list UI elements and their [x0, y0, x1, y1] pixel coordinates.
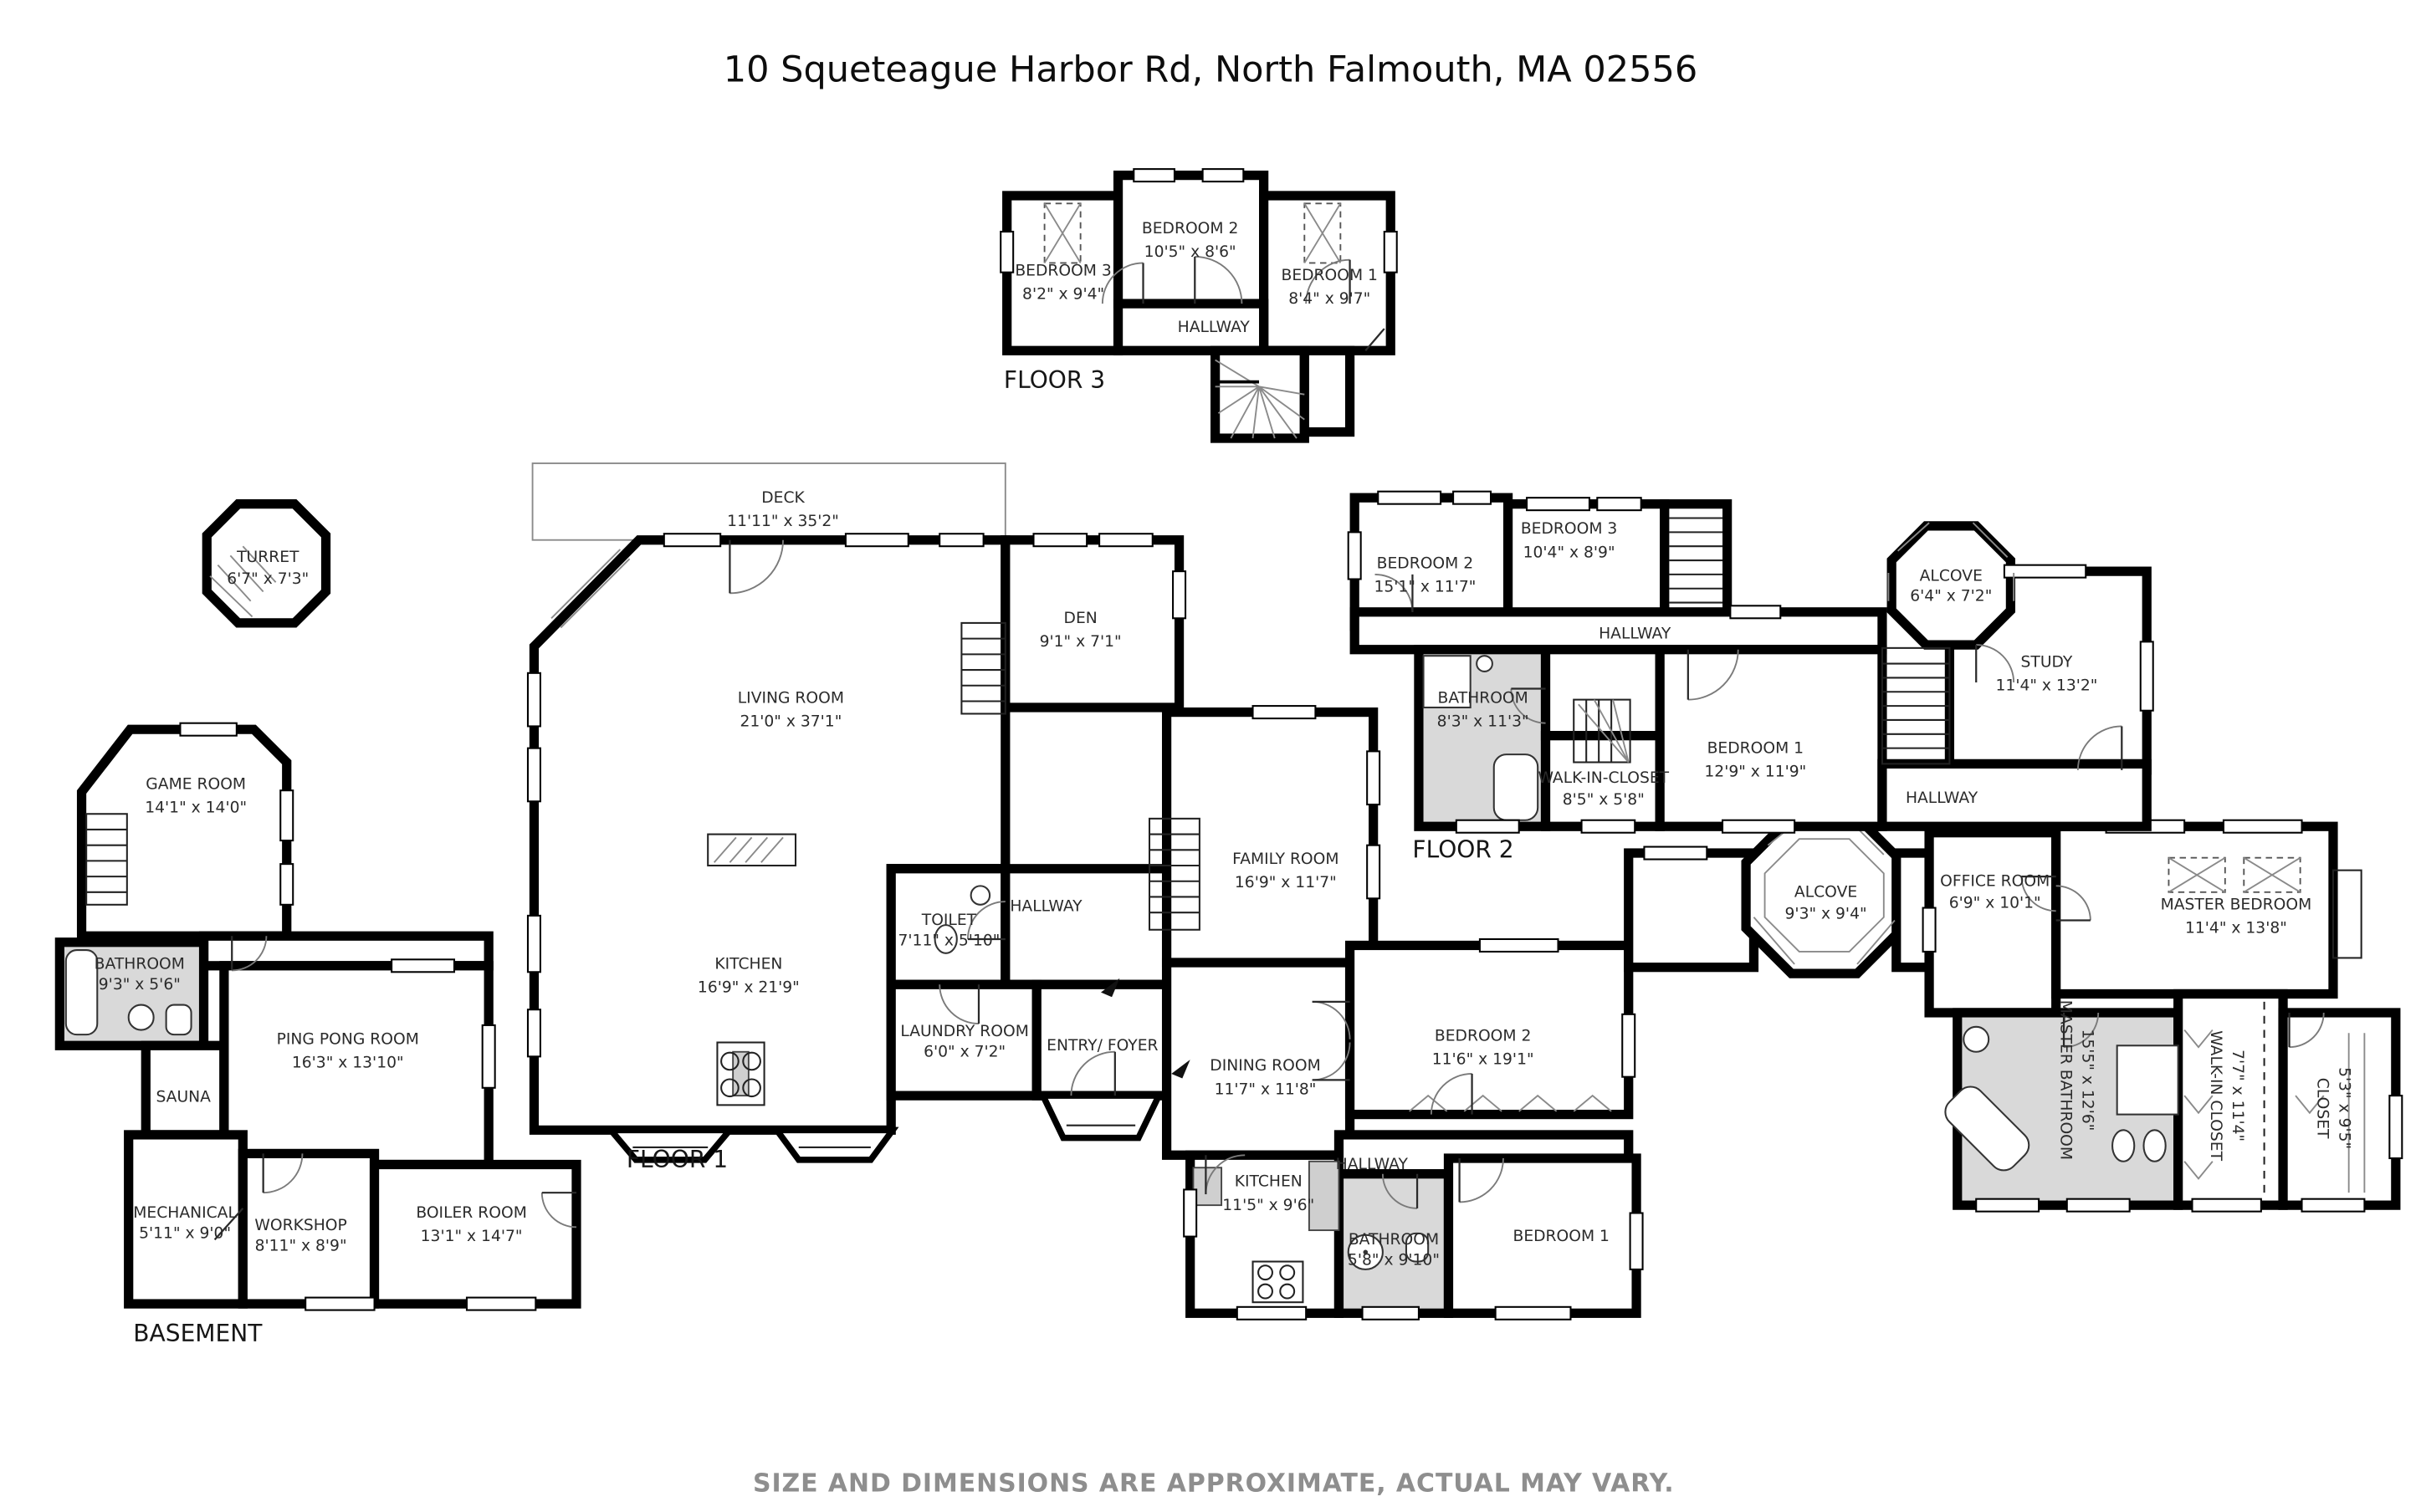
label-f1-alcove-dims: 9'3" x 9'4"	[1785, 906, 1867, 923]
label-floor2: FLOOR 2	[1412, 836, 1513, 864]
label-mechanical-dims: 5'11" x 9'0"	[139, 1224, 231, 1242]
f2-hall-pocket	[1546, 650, 1661, 736]
label-f2-bedroom3-dims: 10'4" x 8'9"	[1523, 544, 1615, 561]
label-turret: TURRET	[236, 549, 299, 566]
label-master-bathroom-dims: 15'5" x 12'6"	[2079, 1029, 2096, 1131]
label-f2-study: STUDY	[2021, 653, 2073, 671]
label-dining: DINING ROOM	[1210, 1057, 1320, 1075]
label-f3-bedroom3-dims: 8'2" x 9'4"	[1022, 285, 1104, 303]
label-laundry: LAUNDRY ROOM	[900, 1023, 1028, 1040]
label-f1-hallway2: HALLWAY	[1336, 1156, 1409, 1173]
floorplan-canvas: 10 Squeteague Harbor Rd, North Falmouth,…	[0, 0, 2421, 1512]
label-closet-dims: 5'3" x 9'5"	[2335, 1067, 2352, 1149]
label-f2-bathroom-dims: 8'3" x 11'3"	[1437, 713, 1529, 730]
room-f1-corridor	[1629, 853, 1754, 968]
label-kitchen2: KITCHEN	[1235, 1173, 1303, 1191]
label-f3-bedroom1: BEDROOM 1	[1282, 267, 1378, 284]
label-master-wic-dims: 7'7" x 11'4"	[2229, 1050, 2246, 1142]
label-pingpong: PING PONG ROOM	[277, 1030, 419, 1048]
label-floor3: FLOOR 3	[1004, 366, 1105, 394]
label-boiler-dims: 13'1" x 14'7"	[421, 1228, 523, 1245]
label-den-dims: 9'1" x 7'1"	[1040, 633, 1122, 651]
label-laundry-dims: 6'0" x 7'2"	[924, 1043, 1006, 1060]
label-f2-hallway: HALLWAY	[1599, 626, 1671, 643]
floor3-plan: BEDROOM 3 8'2" x 9'4" BEDROOM 2 10'5" x …	[1001, 169, 1397, 438]
label-boiler: BOILER ROOM	[416, 1204, 527, 1222]
label-workshop-dims: 8'11" x 8'9"	[255, 1237, 347, 1254]
label-f2-alcove: ALCOVE	[1920, 567, 1983, 585]
label-f1-hallway: HALLWAY	[1010, 897, 1083, 915]
f3-stair-landing	[1304, 350, 1349, 432]
label-family: FAMILY ROOM	[1232, 850, 1338, 868]
label-dining-dims: 11'7" x 11'8"	[1215, 1080, 1317, 1098]
label-workshop: WORKSHOP	[254, 1217, 346, 1234]
label-living: LIVING ROOM	[738, 689, 844, 707]
label-f3-bedroom1-dims: 8'4" x 9'7"	[1288, 290, 1370, 308]
label-deck: DECK	[761, 489, 805, 507]
label-turret-dims: 6'7" x 7'3"	[227, 570, 309, 588]
label-f1-alcove: ALCOVE	[1794, 883, 1857, 901]
room-f3-bedroom2	[1118, 176, 1264, 304]
label-f2-bedroom1-dims: 12'9" x 11'9"	[1704, 763, 1806, 780]
label-f2-wic-dims: 8'5" x 5'8"	[1563, 791, 1645, 809]
label-f3-hallway: HALLWAY	[1178, 319, 1251, 336]
floor2-plan: BEDROOM 2 15'1" x 11'7" BEDROOM 3 10'4" …	[1349, 492, 2153, 864]
label-f2-bedroom2: BEDROOM 2	[1377, 554, 1473, 572]
label-f1-bedroom2-dims: 11'6" x 19'1"	[1432, 1051, 1534, 1069]
label-family-dims: 16'9" x 11'7"	[1235, 874, 1337, 891]
room-f2-alcove	[1891, 526, 2010, 645]
label-kitchen2-dims: 11'5" x 9'6"	[1222, 1197, 1314, 1214]
label-office-dims: 6'9" x 10'1"	[1949, 895, 2041, 912]
label-game-dims: 14'1" x 14'0"	[145, 799, 247, 816]
label-bsmt-bathroom-dims: 9'3" x 5'6"	[99, 976, 181, 994]
label-f2-hallway2: HALLWAY	[1906, 789, 1978, 807]
label-toilet-dims: 7'11" x 5'10"	[898, 932, 1001, 949]
label-living-dims: 21'0" x 37'1"	[740, 713, 842, 730]
basement-plan: GAME ROOM 14'1" x 14'0" BATHROOM 9'3" x …	[59, 723, 576, 1347]
label-sauna: SAUNA	[156, 1089, 211, 1106]
label-f2-alcove-dims: 6'4" x 7'2"	[1910, 588, 1992, 605]
f3-stairwell	[1216, 350, 1305, 438]
label-master-wic: WALK-IN CLOSET	[2207, 1030, 2224, 1161]
label-f2-wic: WALK-IN-CLOSET	[1538, 769, 1669, 787]
room-f2-bedroom1	[1660, 650, 1882, 826]
footer-disclaimer: SIZE AND DIMENSIONS ARE APPROXIMATE, ACT…	[753, 1469, 1675, 1499]
label-pingpong-dims: 16'3" x 13'10"	[292, 1054, 404, 1071]
label-f1-bedroom1: BEDROOM 1	[1513, 1228, 1610, 1245]
label-f2-bedroom3: BEDROOM 3	[1521, 520, 1617, 538]
label-f1-bedroom2: BEDROOM 2	[1435, 1028, 1531, 1045]
label-deck-dims: 11'11" x 35'2"	[727, 513, 839, 530]
label-entry: ENTRY/ FOYER	[1047, 1037, 1158, 1055]
label-den: DEN	[1064, 610, 1098, 627]
label-kitchen: KITCHEN	[714, 956, 782, 973]
label-floor1: FLOOR 1	[627, 1146, 728, 1173]
room-family	[1167, 713, 1374, 963]
label-office: OFFICE ROOM	[1940, 872, 2050, 890]
label-mechanical: MECHANICAL	[133, 1204, 237, 1222]
label-kitchen-dims: 16'9" x 21'9"	[698, 979, 800, 997]
label-f3-bedroom2-dims: 10'5" x 8'6"	[1144, 243, 1236, 261]
label-bsmt-bathroom: BATHROOM	[95, 956, 185, 973]
label-master-bedroom-dims: 11'4" x 13'8"	[2185, 919, 2287, 937]
turret-plan: TURRET 6'7" x 7'3"	[207, 504, 325, 623]
label-toilet: TOILET	[921, 912, 977, 929]
label-f2-bedroom2-dims: 15'1" x 11'7"	[1374, 578, 1476, 595]
label-f2-bedroom1: BEDROOM 1	[1707, 739, 1804, 757]
label-master-bathroom: MASTER BATHROOM	[2056, 1000, 2074, 1160]
label-f1-bathroom-dims: 5'8" x 9'10"	[1348, 1251, 1440, 1269]
label-game: GAME ROOM	[146, 775, 246, 793]
label-f3-bedroom3: BEDROOM 3	[1015, 262, 1111, 279]
room-f1-hallway	[1006, 869, 1167, 985]
label-f2-bathroom: BATHROOM	[1438, 689, 1528, 707]
label-f3-bedroom2: BEDROOM 2	[1142, 220, 1238, 238]
room-office	[1929, 833, 2056, 1013]
page-title: 10 Squeteague Harbor Rd, North Falmouth,…	[724, 49, 1698, 90]
label-master-bedroom: MASTER BEDROOM	[2161, 896, 2312, 913]
label-f1-bathroom: BATHROOM	[1349, 1231, 1439, 1249]
label-f2-study-dims: 11'4" x 13'2"	[1996, 677, 2098, 694]
label-basement: BASEMENT	[133, 1320, 263, 1347]
label-closet: CLOSET	[2313, 1078, 2331, 1139]
